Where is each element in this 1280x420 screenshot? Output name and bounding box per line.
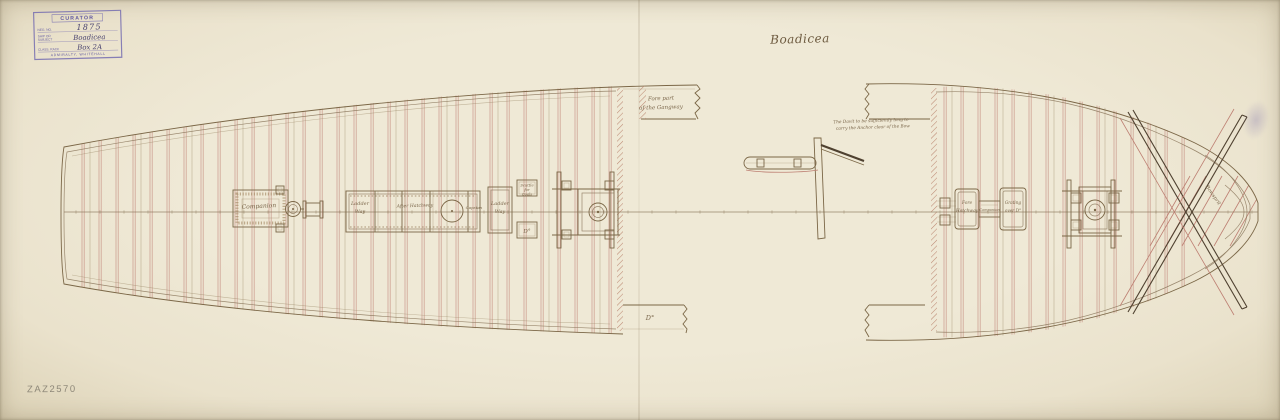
ladderway-label: Way	[495, 209, 506, 215]
scuttle-ditto-label: D°	[522, 229, 530, 235]
fish-davit-detail	[744, 138, 864, 239]
deck-cut-hatch	[931, 88, 937, 331]
scuttle-label: Scuttle	[520, 184, 534, 188]
gangway-label: of the Gangway	[639, 104, 684, 112]
fore-companion-label: Companion	[979, 208, 1000, 212]
plan-labels: Companion Ladder Way After Hatchway Caps…	[241, 96, 1222, 322]
gangway-strips-aft	[617, 85, 700, 333]
fore-hatchway-label: Hatchway	[955, 209, 979, 214]
break-hatch	[639, 86, 646, 119]
mainmast-bitts	[552, 172, 620, 248]
davit-arm	[821, 145, 864, 161]
fore-hatchway-label: Fore	[961, 201, 973, 206]
deck-plan-drawing: Companion Ladder Way After Hatchway Caps…	[0, 0, 1280, 420]
hull-outline-aft	[61, 85, 697, 334]
fore-grating-label: Grating	[1005, 200, 1022, 205]
deck-beams-aft-half	[82, 60, 611, 360]
davit-note-line2: carry the Anchor clear of the Bow	[836, 124, 910, 132]
ladderway-aft-label: Way	[355, 209, 366, 215]
foremast-bitts	[1062, 180, 1122, 248]
gangway-ditto-label: D°	[645, 314, 654, 322]
gangway-label: Fore part	[647, 96, 675, 103]
plan-sheet: CURATOR Neg. No. 1875 Ship or Subject Bo…	[0, 0, 1280, 420]
bow-cant-line	[1214, 176, 1254, 246]
after-hatchway-label: After Hatchway	[396, 202, 434, 209]
steering-wheel	[286, 201, 324, 218]
capstan-label: Capstan	[466, 205, 483, 210]
scuttle-label: Coals	[522, 192, 532, 196]
ladderway-aft-label: Ladder	[350, 201, 370, 207]
reference-number: ZAZ2570	[27, 384, 77, 395]
ladderway-label: Ladder	[490, 201, 510, 207]
fore-grating-label: over D°	[1005, 208, 1021, 213]
